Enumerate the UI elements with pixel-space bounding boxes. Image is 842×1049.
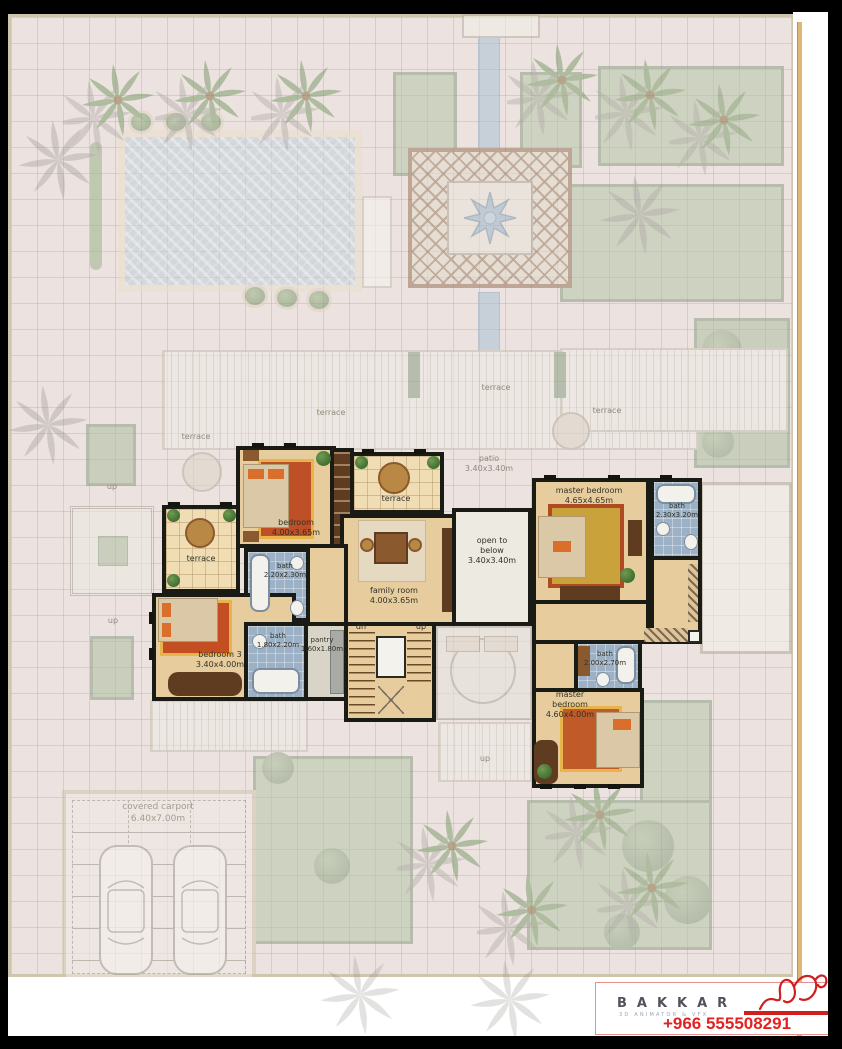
suite-hallway — [532, 640, 578, 692]
room-dims: 3.40x3.40m — [468, 556, 516, 566]
pantry-label: pantry 1.60x1.80m — [301, 636, 343, 654]
side-cabinet — [628, 520, 642, 556]
plant-icon — [223, 509, 236, 522]
elevator-shaft — [376, 636, 406, 678]
family-room-label: family room 4.00x3.65m — [370, 586, 418, 606]
master1-label: master bedroom 4.65x4.65m — [556, 486, 623, 506]
phone-number: +966 555508291 — [624, 1014, 830, 1034]
room-dims: 4.65x4.65m — [556, 496, 623, 506]
window-marker — [574, 784, 586, 789]
room-dims: 2.30x3.20m — [656, 511, 698, 520]
stair-treads — [407, 632, 431, 684]
terrace-table — [185, 518, 215, 548]
window-marker — [149, 612, 154, 624]
room-dims: 2.00x2.70m — [584, 659, 626, 668]
room-name: master bedroom — [556, 486, 623, 496]
plant-icon — [537, 764, 552, 779]
room-dims: 1.80x2.20m — [257, 641, 299, 650]
plant-icon — [427, 456, 440, 469]
dresser — [560, 586, 620, 600]
bath2-label: bath 1.80x2.20m — [257, 632, 299, 650]
family-table — [374, 532, 408, 564]
frame-bottom — [0, 1036, 842, 1049]
room-name: bath — [656, 502, 698, 511]
plant-icon — [620, 568, 635, 583]
plant-icon — [316, 451, 331, 466]
room-name: bedroom — [546, 700, 594, 710]
nightstand — [243, 531, 259, 542]
window-marker — [608, 475, 620, 480]
window-marker — [414, 449, 426, 454]
suite-hallway — [532, 600, 650, 644]
bedroom-label: bedroom 4.00x3.65m — [272, 518, 320, 538]
boundary-wall-line — [797, 22, 802, 1036]
window-marker — [544, 475, 556, 480]
terrace-left-label: terrace — [187, 554, 216, 564]
terrace-table — [378, 462, 410, 494]
company-logo-box: BAKKAR 3D ANIMATOR & VFX +966 555508291 — [595, 982, 835, 1035]
frame-top — [0, 0, 842, 12]
plant-icon — [355, 456, 368, 469]
open-to-below-void — [452, 508, 532, 626]
room-dims: 4.00x3.65m — [272, 528, 320, 538]
bath1-label: bath 2.20x2.30m — [264, 562, 306, 580]
room-name: master — [546, 690, 594, 700]
room-dims: 4.00x3.65m — [370, 596, 418, 606]
window-marker — [540, 784, 552, 789]
window-marker — [284, 443, 296, 448]
room-dims: 2.20x2.30m — [264, 571, 306, 580]
palm-shadow — [305, 940, 415, 1049]
closet — [688, 564, 698, 622]
room-name: family room — [370, 586, 418, 596]
room-name: bath — [584, 650, 626, 659]
frame-left — [0, 0, 8, 1049]
bed — [596, 712, 640, 768]
window-marker — [608, 784, 620, 789]
bathtub — [252, 668, 300, 694]
palm-shadow — [455, 945, 565, 1049]
bedroom3-label: bedroom 3 3.40x4.00m — [196, 650, 244, 670]
signature-icon — [754, 971, 834, 1017]
bed — [158, 598, 218, 642]
room-name: bedroom 3 — [196, 650, 244, 660]
bath3-label: bath 2.30x3.20m — [656, 502, 698, 520]
brand-name: BAKKAR — [617, 996, 737, 1011]
room-dims: 3.40x4.00m — [196, 660, 244, 670]
room-name: bath — [257, 632, 299, 641]
room-dims: 1.60x1.80m — [301, 645, 343, 654]
window-marker — [660, 475, 672, 480]
stairs-up-label: up — [416, 622, 426, 632]
window-marker — [220, 502, 232, 507]
room-name: bedroom — [272, 518, 320, 528]
terrace-upper-label: terrace — [382, 494, 411, 504]
duct-shaft — [688, 630, 701, 643]
room-name: below — [468, 546, 516, 556]
stair-treads — [349, 632, 375, 716]
plant-icon — [167, 509, 180, 522]
bed — [538, 516, 586, 578]
plant-icon — [167, 574, 180, 587]
stair-landing-brace — [378, 686, 404, 714]
window-marker — [168, 502, 180, 507]
master2-label: master bedroom 4.60x4.00m — [546, 690, 594, 720]
room-name: open to — [468, 536, 516, 546]
window-marker — [362, 449, 374, 454]
hallway — [306, 544, 348, 626]
closet — [644, 628, 688, 642]
bathtub — [656, 484, 696, 504]
toilet — [684, 534, 698, 550]
floor-plan-image: terrace terrace terrace terrace patio 3.… — [0, 0, 842, 1049]
room-dims: 4.60x4.00m — [546, 710, 594, 720]
open-below-label: open to below 3.40x3.40m — [468, 536, 516, 566]
chair — [408, 538, 422, 552]
room-name: bath — [264, 562, 306, 571]
sink — [656, 522, 670, 536]
frame-right — [828, 0, 842, 1049]
bath4-label: bath 2.00x2.70m — [584, 650, 626, 668]
window-marker — [149, 648, 154, 660]
toilet — [596, 672, 610, 687]
first-floor-plan: bedroom 4.00x3.65m terrace family room 4… — [0, 0, 842, 1049]
window-marker — [252, 443, 264, 448]
media-cabinet — [442, 528, 452, 612]
desk — [168, 672, 242, 696]
toilet — [290, 600, 304, 616]
nightstand — [243, 450, 259, 461]
stairs-dn-label: dn — [356, 622, 366, 632]
room-name: pantry — [301, 636, 343, 645]
chair — [360, 538, 374, 552]
